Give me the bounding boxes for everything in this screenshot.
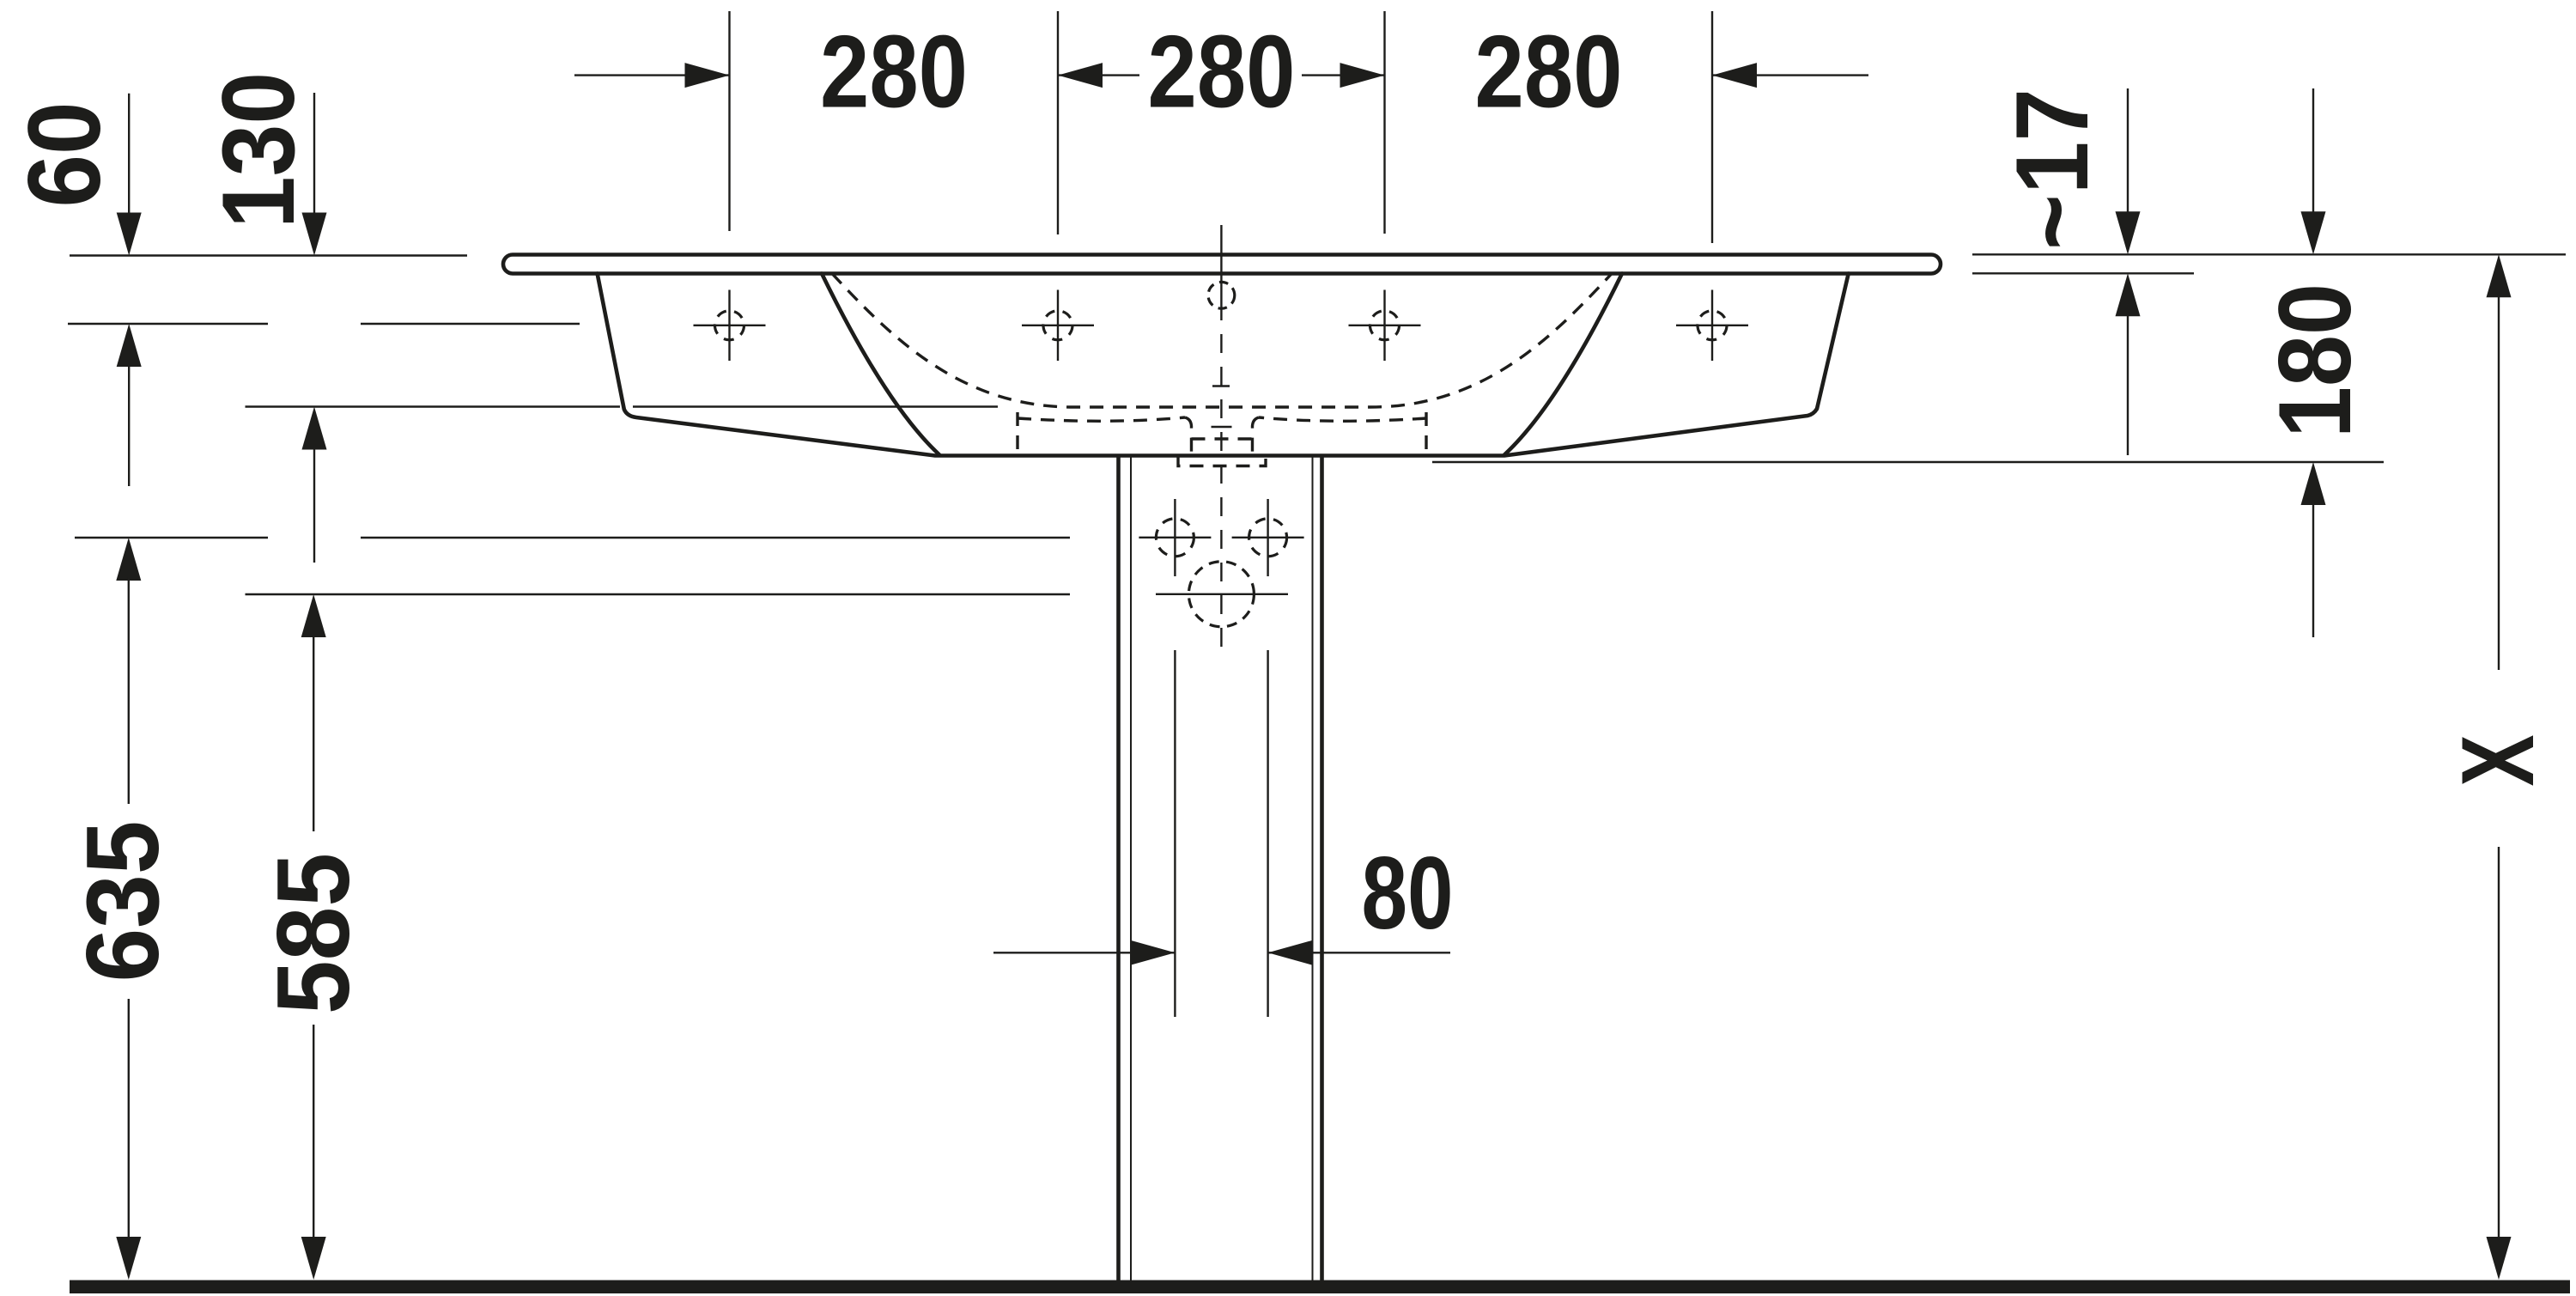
svg-text:280: 280 <box>820 15 968 130</box>
svg-text:280: 280 <box>1475 15 1623 130</box>
svg-text:80: 80 <box>1362 836 1454 951</box>
svg-text:60: 60 <box>7 102 122 208</box>
svg-text:~17: ~17 <box>1995 88 2110 250</box>
svg-text:X: X <box>2440 735 2555 787</box>
svg-text:585: 585 <box>256 853 371 1014</box>
svg-text:280: 280 <box>1148 15 1296 130</box>
svg-text:130: 130 <box>201 72 316 228</box>
svg-text:635: 635 <box>65 821 180 983</box>
svg-text:180: 180 <box>2257 283 2372 438</box>
